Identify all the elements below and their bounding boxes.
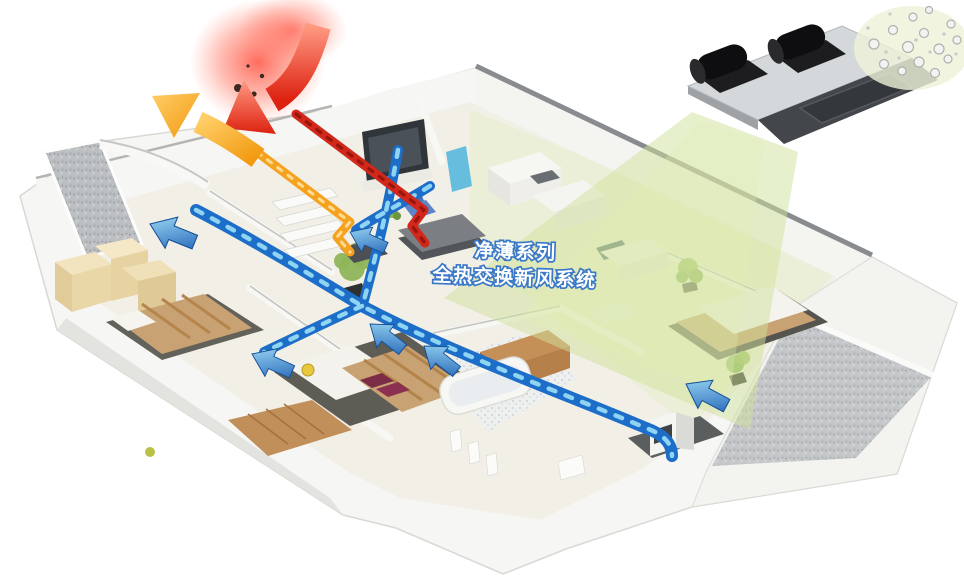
ventilation-system-illustration: 净薄系列 全热交换新风系统 — [0, 0, 964, 580]
polluted-air-haze — [190, 0, 347, 124]
tiny-green-object — [145, 447, 155, 457]
scene-canvas: 净薄系列 全热交换新风系统 — [0, 0, 964, 580]
title-line1: 净薄系列 — [474, 239, 557, 265]
bedside-lamp — [302, 364, 314, 376]
